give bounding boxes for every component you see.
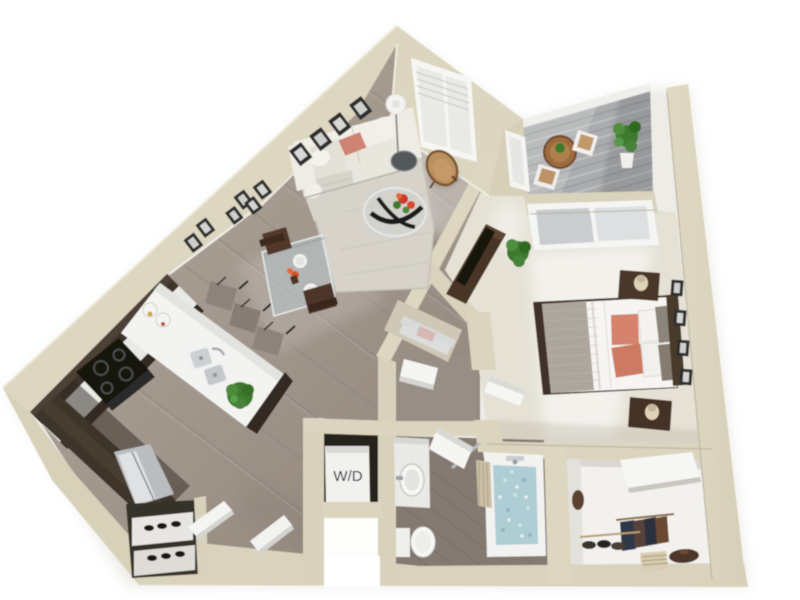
svg-text:W/D: W/D (333, 468, 362, 485)
